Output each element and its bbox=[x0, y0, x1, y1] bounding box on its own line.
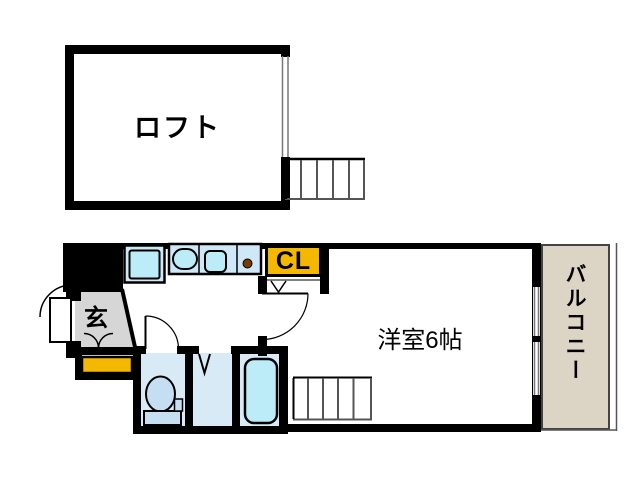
toilet-door bbox=[146, 316, 179, 349]
stove-burner-icon bbox=[173, 249, 197, 269]
balcony-label: バルコニー bbox=[565, 263, 589, 413]
bathtub-icon bbox=[245, 359, 277, 423]
western-room-label: 洋室6帖 bbox=[330, 320, 510, 355]
kitchen-sink bbox=[125, 246, 165, 283]
loft-stairs-icon bbox=[285, 159, 365, 199]
sink-basin-icon bbox=[205, 251, 226, 272]
closet-bifold-door bbox=[271, 281, 286, 292]
shower-room-floor bbox=[192, 353, 233, 427]
floorplan: ロフト 玄 CL 洋室6帖 バルコニー bbox=[0, 0, 640, 480]
entrance-label: 玄 bbox=[84, 298, 108, 333]
kitchen-counter bbox=[169, 244, 261, 274]
closet-label: CL bbox=[265, 245, 322, 277]
room-door bbox=[262, 294, 308, 340]
floorplan-drawing bbox=[0, 0, 640, 480]
stove-knob-icon bbox=[243, 259, 252, 268]
loft-label: ロフト bbox=[75, 106, 280, 145]
stairs-icon bbox=[293, 378, 372, 420]
loft-railing bbox=[281, 56, 291, 157]
